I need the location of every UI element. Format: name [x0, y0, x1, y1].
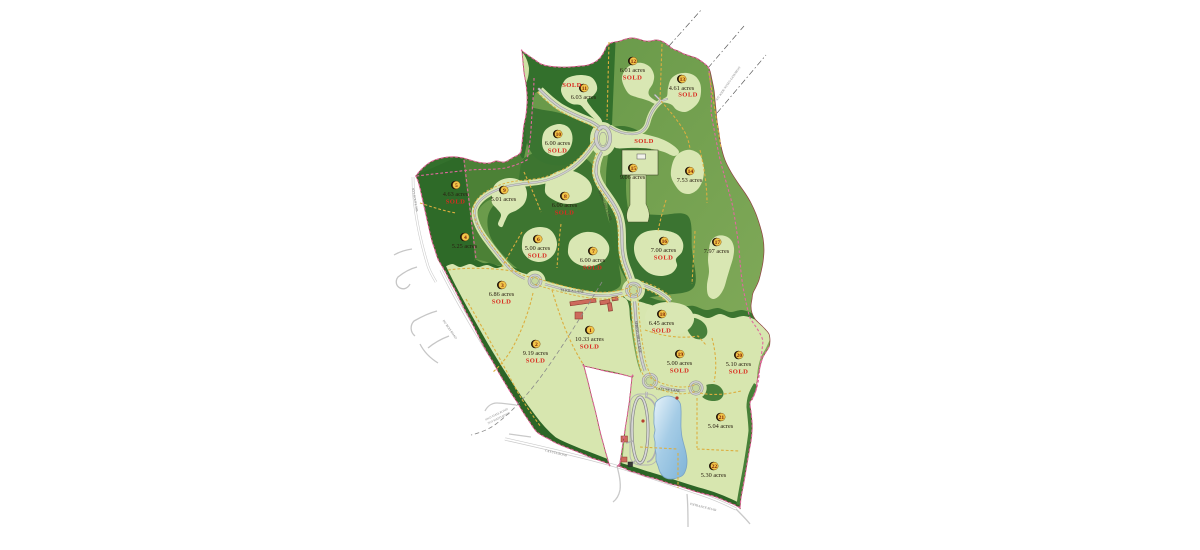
svg-text:SOLD: SOLD — [729, 368, 749, 375]
svg-text:SOLD: SOLD — [526, 357, 546, 364]
svg-text:7.97 acres: 7.97 acres — [704, 248, 730, 255]
svg-text:NYS ROUTE 96B: NYS ROUTE 96B — [411, 188, 419, 212]
svg-text:SOLD: SOLD — [492, 298, 512, 305]
svg-text:SOLD: SOLD — [670, 367, 690, 374]
svg-text:SOLD: SOLD — [652, 327, 672, 334]
svg-text:7.00 acres: 7.00 acres — [651, 247, 677, 254]
svg-text:5.00 acres: 5.00 acres — [667, 360, 693, 367]
svg-text:9.19 acres: 9.19 acres — [523, 350, 549, 357]
svg-text:5.10 acres: 5.10 acres — [726, 361, 752, 368]
svg-text:6.00 acres: 6.00 acres — [552, 202, 578, 209]
svg-text:5.04 acres: 5.04 acres — [708, 423, 734, 430]
svg-text:5.30 acres: 5.30 acres — [701, 472, 727, 479]
svg-text:SOLD: SOLD — [634, 138, 654, 145]
svg-text:9: 9 — [503, 188, 506, 194]
svg-text:12: 12 — [631, 59, 637, 65]
svg-text:SOLD: SOLD — [678, 92, 698, 99]
svg-text:SOLD: SOLD — [654, 254, 674, 261]
svg-text:19: 19 — [678, 352, 684, 358]
svg-text:6.86 acres: 6.86 acres — [489, 291, 515, 298]
svg-text:5.00 acres: 5.00 acres — [525, 245, 551, 252]
svg-text:6.00 acres: 6.00 acres — [545, 140, 571, 147]
svg-text:22: 22 — [712, 464, 718, 470]
svg-text:SOLD: SOLD — [528, 252, 548, 259]
svg-text:8: 8 — [564, 194, 567, 200]
svg-text:SOLD: SOLD — [562, 82, 582, 89]
svg-text:3: 3 — [501, 283, 504, 289]
svg-text:6.45 acres: 6.45 acres — [649, 320, 675, 327]
svg-text:SOLD: SOLD — [555, 209, 575, 216]
svg-text:5.01 acres: 5.01 acres — [491, 196, 517, 203]
svg-text:21: 21 — [719, 415, 725, 421]
svg-text:DU BOIS ROAD: DU BOIS ROAD — [442, 319, 459, 340]
svg-text:6: 6 — [537, 237, 540, 243]
svg-text:475' WIDE NYSEG EASEMENT: 475' WIDE NYSEG EASEMENT — [715, 65, 742, 101]
svg-text:SOLD: SOLD — [446, 198, 466, 205]
svg-text:2: 2 — [535, 342, 538, 348]
svg-text:4: 4 — [464, 235, 467, 241]
svg-text:16: 16 — [662, 239, 668, 245]
svg-text:10.33 acres: 10.33 acres — [575, 336, 604, 343]
svg-text:1: 1 — [589, 328, 592, 334]
svg-text:5.25 acres: 5.25 acres — [452, 243, 478, 250]
svg-text:6.01 acres: 6.01 acres — [620, 67, 646, 74]
svg-text:9.06 acres: 9.06 acres — [620, 174, 646, 181]
svg-text:20: 20 — [737, 353, 743, 359]
svg-text:18: 18 — [660, 312, 666, 318]
svg-text:15: 15 — [631, 166, 637, 172]
svg-text:SOLD: SOLD — [580, 343, 600, 350]
svg-text:7.53 acres: 7.53 acres — [677, 177, 703, 184]
svg-text:6.03 acres: 6.03 acres — [571, 94, 597, 101]
svg-text:ENTRANCE ROAD: ENTRANCE ROAD — [690, 502, 718, 513]
svg-text:10: 10 — [556, 132, 562, 138]
svg-text:SOLD: SOLD — [583, 264, 603, 271]
svg-text:5: 5 — [455, 183, 458, 189]
svg-text:7: 7 — [592, 249, 595, 255]
svg-text:14: 14 — [688, 169, 694, 175]
svg-text:17: 17 — [715, 240, 721, 246]
svg-text:SOLD: SOLD — [623, 74, 643, 81]
svg-text:11: 11 — [582, 86, 587, 92]
svg-text:6.00 acres: 6.00 acres — [580, 257, 606, 264]
svg-text:4.63 acres: 4.63 acres — [443, 191, 469, 198]
svg-text:13: 13 — [680, 77, 686, 83]
svg-text:SOLD: SOLD — [548, 147, 568, 154]
